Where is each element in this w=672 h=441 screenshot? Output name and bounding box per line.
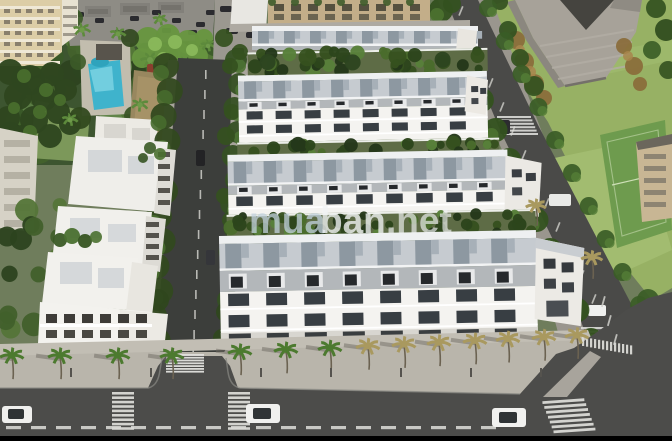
svg-text:.net: .net [386,200,452,241]
svg-text:mua: mua [249,200,326,241]
svg-text:ban: ban [320,200,386,241]
